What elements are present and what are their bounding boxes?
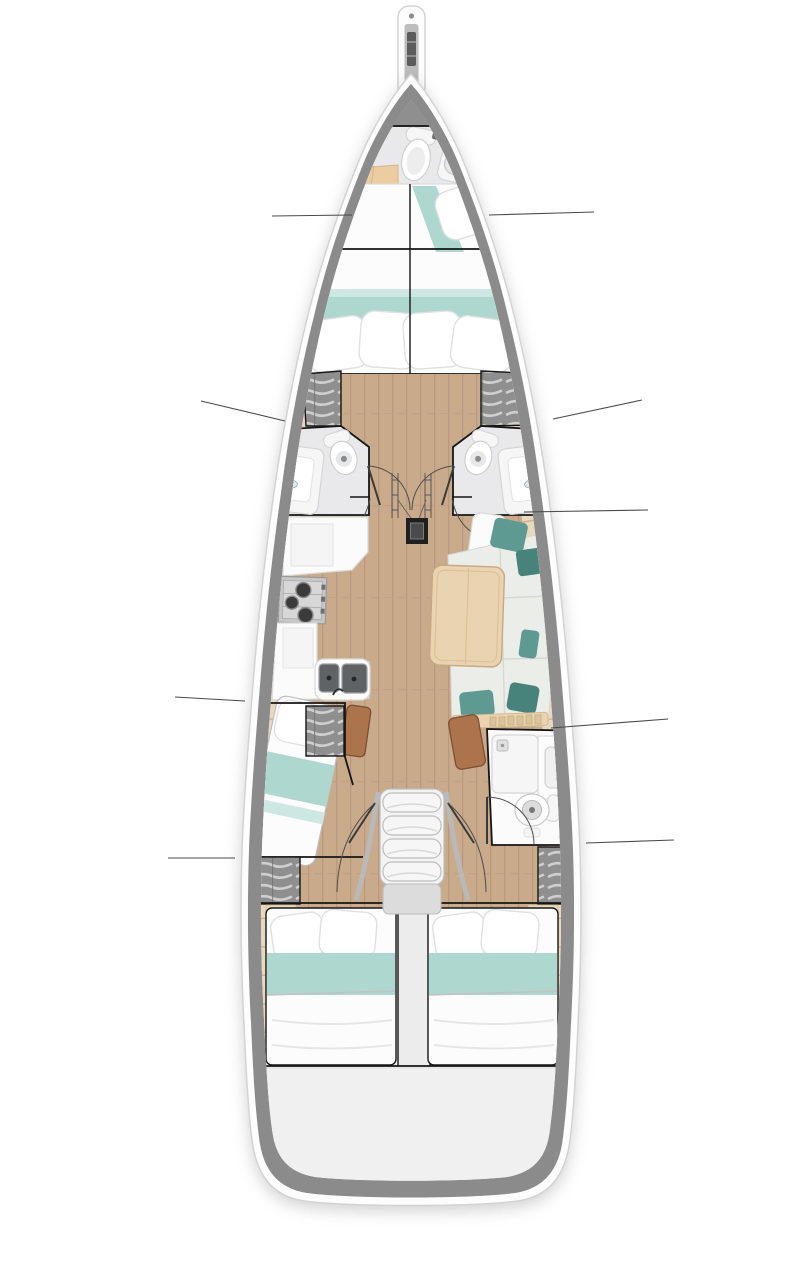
anchor-roller xyxy=(407,32,416,66)
leader-line-starboard-head xyxy=(553,400,642,419)
step xyxy=(383,862,441,881)
toilet-drain xyxy=(529,807,535,813)
dining-table xyxy=(429,565,504,667)
step xyxy=(383,839,441,858)
mast-post-cap xyxy=(411,523,424,539)
companionway-landing xyxy=(383,884,441,914)
interior xyxy=(245,92,592,1188)
engine-box xyxy=(398,906,430,1066)
stove-burner xyxy=(298,607,314,623)
transom-platform xyxy=(262,1068,560,1188)
stove-knob xyxy=(321,597,325,602)
stove-knob xyxy=(321,585,325,590)
galley-sink-unit xyxy=(315,659,370,700)
step xyxy=(383,816,441,835)
port-aft-bed xyxy=(266,908,396,1065)
forestay-fitting xyxy=(409,13,414,18)
leader-line-port-cabin xyxy=(175,697,245,701)
step xyxy=(383,793,441,812)
mast-post xyxy=(406,518,428,544)
leader-line-port-head xyxy=(201,401,285,421)
yacht-floor-plan xyxy=(0,0,807,1280)
blanket xyxy=(267,953,395,995)
stove-knob xyxy=(321,609,325,614)
galley-cabinet-front xyxy=(291,524,333,566)
pillow xyxy=(480,909,540,960)
stove-burner xyxy=(285,596,298,609)
aft-cabins xyxy=(250,903,572,1066)
leader-line-forward-cabin-starboard xyxy=(489,212,594,215)
starboard-aft-bed xyxy=(428,908,558,1065)
sink-drain xyxy=(352,677,357,682)
galley-stove xyxy=(278,576,327,624)
galley-cabinet-front xyxy=(283,628,313,668)
pillow xyxy=(318,909,378,960)
shower-drain-dot xyxy=(501,744,505,748)
sink-drain xyxy=(327,676,332,681)
yacht-floor-plan-page xyxy=(0,0,807,1280)
leader-line-starboard-aft-cabin xyxy=(586,840,674,843)
v-berth-blanket-edge xyxy=(304,289,518,297)
blanket xyxy=(429,953,557,995)
port-cabin-locker xyxy=(306,706,344,756)
basin-faucet xyxy=(466,153,473,164)
stove-burner xyxy=(296,582,312,598)
teal-pillow xyxy=(506,682,540,715)
transom xyxy=(260,1068,563,1188)
